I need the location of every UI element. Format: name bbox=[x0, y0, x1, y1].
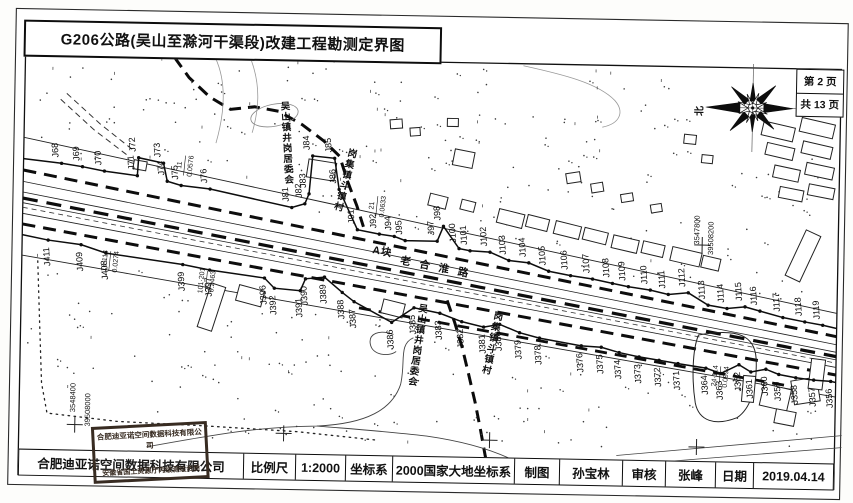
north-label: 北 bbox=[693, 106, 706, 116]
boundary-point-label: J106 bbox=[558, 250, 569, 270]
boundary-point-label: J379 bbox=[512, 340, 523, 360]
boundary-point-label: J374 bbox=[612, 359, 623, 379]
page-title: G206公路(吴山至滁河干渠段)改建工程勘测定界图 bbox=[61, 28, 406, 55]
crs-label: 坐标系 bbox=[345, 456, 392, 482]
grid-coordinate-label: 39508000 bbox=[83, 393, 93, 427]
boundary-point-label: J92 bbox=[367, 213, 378, 228]
reviewer-label: 审核 bbox=[622, 461, 665, 487]
crs-value: 2000国家大地坐标系 bbox=[392, 456, 514, 483]
boundary-point-label: J81 bbox=[280, 187, 291, 202]
boundary-point-label: J362 bbox=[732, 372, 743, 392]
boundary-point-label: J111 bbox=[656, 270, 667, 289]
svg-text:会: 会 bbox=[284, 174, 295, 186]
boundary-point-label: J389 bbox=[317, 284, 328, 304]
svg-text:11: 11 bbox=[176, 161, 184, 169]
boundary-point-label: J116 bbox=[748, 286, 759, 306]
boundary-point-label: J364 bbox=[699, 375, 710, 395]
boundary-point-label: J100 bbox=[447, 223, 458, 243]
boundary-point-label: J76 bbox=[198, 168, 209, 183]
boundary-point-label: J118 bbox=[793, 297, 804, 317]
grid-coordinate-label: 3547800 bbox=[692, 215, 702, 244]
boundary-point-label: J70 bbox=[93, 150, 104, 165]
boundary-point-label: J388 bbox=[335, 299, 346, 319]
boundary-point-label: J382 bbox=[455, 329, 466, 349]
company-seal-stamp: 合肥迪亚诺空间数据科技有限公司 安徽省国土资源厅丙级测绘资质 bbox=[91, 421, 210, 484]
boundary-point-label: J72 bbox=[127, 137, 138, 152]
boundary-point-label: J91 bbox=[346, 209, 357, 224]
boundary-point-label: J117 bbox=[771, 293, 782, 313]
grid-coordinate-label: 39508200 bbox=[706, 221, 716, 255]
boundary-point-label: J357 bbox=[807, 387, 818, 407]
boundary-point-label: J375 bbox=[594, 354, 605, 374]
boundary-point-label: J105 bbox=[536, 246, 547, 266]
page-number-box: 第 2 页 共 13 页 bbox=[796, 69, 845, 118]
boundary-point-label: J119 bbox=[811, 300, 822, 320]
boundary-point-label: J107 bbox=[580, 253, 591, 273]
boundary-point-label: J104 bbox=[517, 237, 528, 257]
boundary-point-label: J399 bbox=[176, 271, 187, 291]
page-total: 共 13 页 bbox=[797, 92, 843, 116]
date-value: 2019.04.14 bbox=[753, 463, 833, 489]
boundary-point-label: J411 bbox=[41, 247, 52, 267]
boundary-point-label: J373 bbox=[632, 364, 643, 384]
boundary-point-label: J68 bbox=[50, 143, 61, 158]
stamp-license-line: 安徽省国土资源厅丙级测绘资质 bbox=[98, 463, 204, 478]
stamp-company-line: 合肥迪亚诺空间数据科技有限公司 bbox=[96, 426, 203, 453]
boundary-point-label: J85 bbox=[323, 138, 334, 153]
reviewer-name: 张峰 bbox=[665, 461, 715, 487]
boundary-point-label: J109 bbox=[616, 261, 627, 281]
boundary-point-label: J387 bbox=[347, 309, 358, 329]
scanned-survey-map-page: J68J69J70J71J72J73J74J75J76J81J82J83J84J… bbox=[0, 0, 853, 503]
boundary-point-label: J372 bbox=[652, 367, 663, 387]
boundary-point-label: J361 bbox=[744, 379, 755, 399]
boundary-point-label: J371 bbox=[671, 371, 682, 391]
date-label: 日期 bbox=[715, 462, 753, 488]
boundary-point-label: J71 bbox=[125, 155, 136, 170]
boundary-point-label: J101 bbox=[458, 225, 469, 245]
boundary-point-label: J103 bbox=[497, 235, 508, 255]
boundary-point-label: J392 bbox=[267, 295, 278, 315]
drafter-name: 孙宝林 bbox=[559, 459, 622, 485]
boundary-point-label: J359 bbox=[772, 381, 783, 401]
boundary-point-label: J98 bbox=[432, 206, 443, 221]
boundary-point-label: J110 bbox=[638, 265, 649, 285]
svg-text:21: 21 bbox=[368, 201, 376, 210]
boundary-point-label: J409 bbox=[74, 252, 85, 272]
drafter-label: 制图 bbox=[514, 459, 559, 485]
boundary-point-label: J97 bbox=[425, 221, 436, 236]
boundary-point-label: J378 bbox=[532, 345, 543, 365]
boundary-point-label: J386 bbox=[385, 329, 396, 349]
boundary-point-label: J383 bbox=[433, 320, 444, 340]
boundary-point-label: J95 bbox=[393, 220, 404, 235]
page-number: 第 2 页 bbox=[797, 70, 843, 93]
title-box: G206公路(吴山至滁河干渠段)改建工程勘测定界图 bbox=[24, 20, 443, 65]
boundary-point-label: J115 bbox=[733, 282, 744, 302]
boundary-point-label: J108 bbox=[600, 258, 611, 278]
map-sheet: J68J69J70J71J72J73J74J75J76J81J82J83J84J… bbox=[0, 0, 853, 503]
boundary-point-label: J376 bbox=[574, 353, 585, 373]
boundary-point-label: J86 bbox=[327, 169, 338, 184]
boundary-point-label: J84 bbox=[301, 135, 312, 150]
grid-coordinate-label: 3548400 bbox=[68, 383, 78, 412]
boundary-point-label: J113 bbox=[696, 280, 707, 300]
boundary-point-label: J102 bbox=[478, 226, 489, 246]
scale-label: 比例尺 bbox=[243, 454, 295, 480]
scale-value: 1:2000 bbox=[295, 455, 345, 481]
boundary-point-label: J358 bbox=[789, 385, 800, 405]
boundary-point-label: J83 bbox=[297, 173, 308, 188]
boundary-point-label: J390 bbox=[298, 286, 309, 306]
boundary-point-label: J73 bbox=[152, 142, 163, 157]
boundary-point-label: J74 bbox=[155, 161, 166, 176]
boundary-point-label: J69 bbox=[71, 146, 82, 161]
boundary-point-label: J356 bbox=[824, 388, 835, 408]
boundary-point-label: J114 bbox=[715, 284, 726, 304]
boundary-point-label: J112 bbox=[676, 268, 687, 288]
boundary-point-label: J360 bbox=[759, 376, 770, 396]
